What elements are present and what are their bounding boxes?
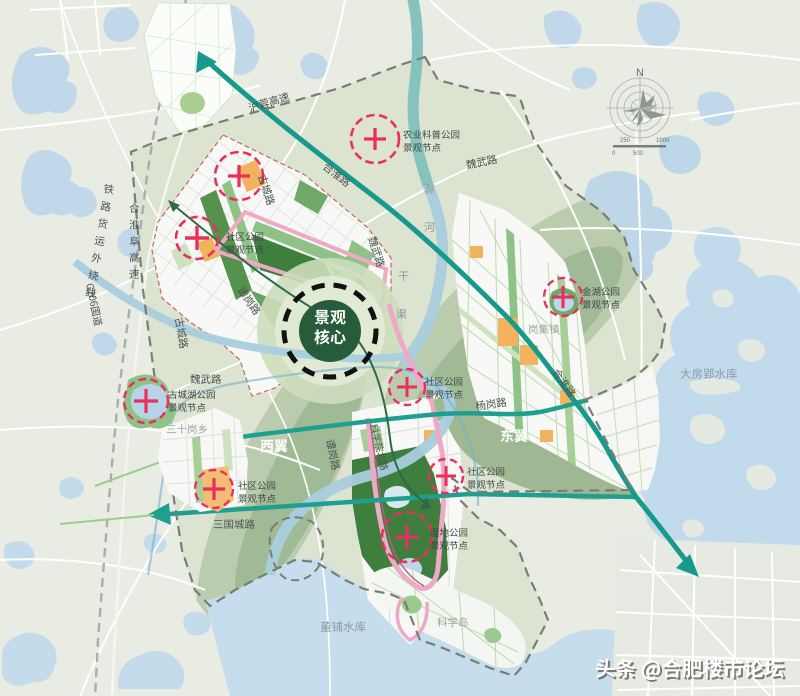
- svg-text:1000: 1000: [656, 138, 670, 144]
- svg-text:N: N: [636, 67, 644, 79]
- svg-text:250: 250: [620, 138, 631, 144]
- svg-text:500: 500: [633, 151, 644, 157]
